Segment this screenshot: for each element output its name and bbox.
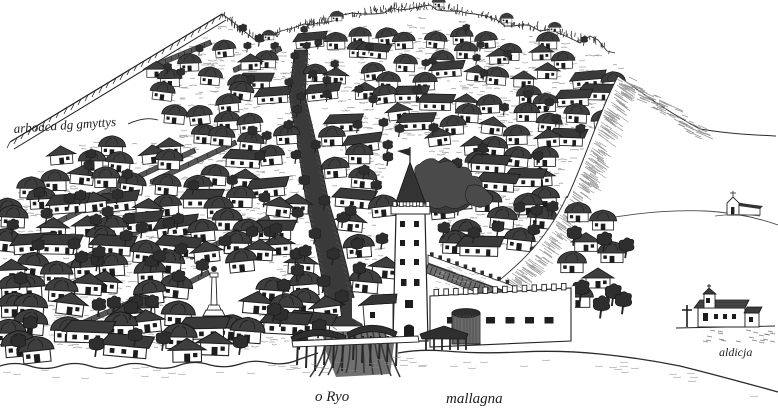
svg-text:aldicja: aldicja xyxy=(719,345,752,359)
svg-text:mallagna: mallagna xyxy=(446,391,503,407)
svg-text:o Ryo: o Ryo xyxy=(315,389,350,405)
